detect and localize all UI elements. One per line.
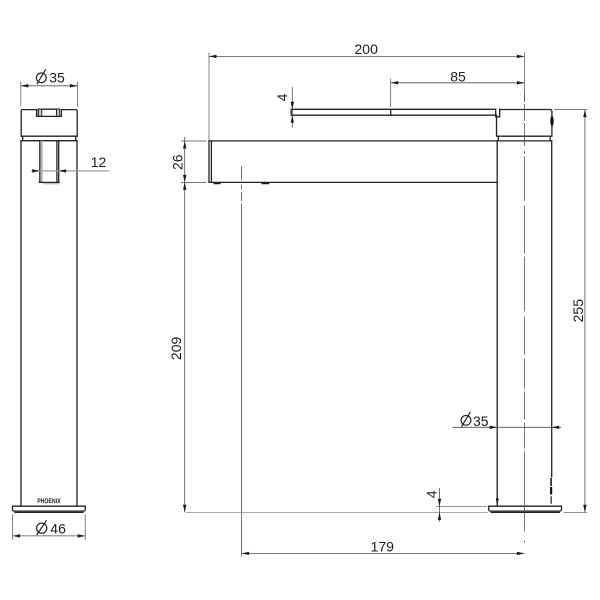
svg-text:209: 209 — [168, 337, 184, 361]
svg-text:4: 4 — [424, 490, 440, 498]
svg-text:35: 35 — [473, 413, 489, 429]
svg-text:35: 35 — [49, 70, 65, 86]
svg-text:179: 179 — [371, 539, 395, 555]
svg-text:255: 255 — [570, 299, 586, 323]
svg-text:12: 12 — [91, 154, 107, 170]
svg-text:PHOENIX: PHOENIX — [37, 498, 61, 505]
svg-text:46: 46 — [50, 520, 66, 536]
svg-text:85: 85 — [450, 68, 466, 84]
svg-text:200: 200 — [355, 41, 379, 57]
svg-text:26: 26 — [170, 154, 186, 170]
svg-text:4: 4 — [274, 93, 290, 101]
